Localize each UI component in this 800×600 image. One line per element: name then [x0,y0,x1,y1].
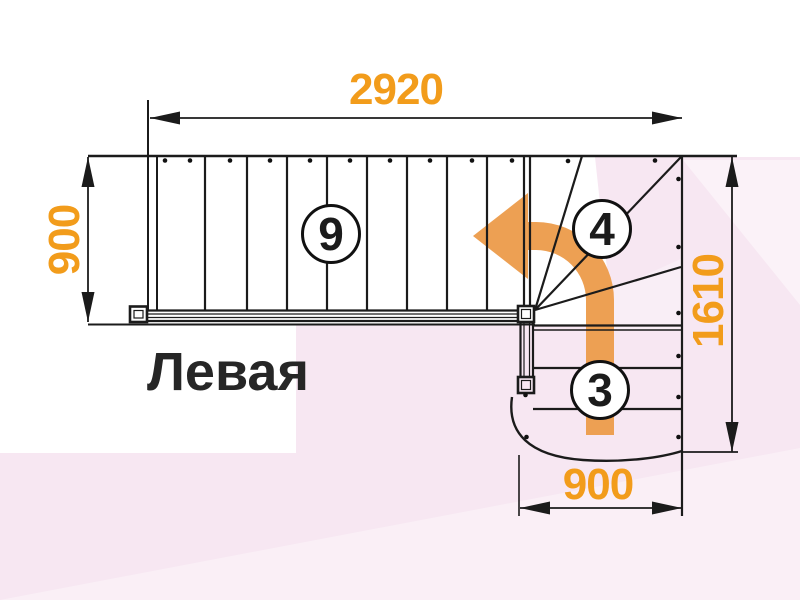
step-count-lower-flight: 3 [570,360,630,420]
dimension-label-right: 1610 [685,221,733,381]
step-count-upper-flight: 9 [301,204,361,264]
staircase-plan-diagram: 2920 900 1610 900 Левая 9 4 3 [0,0,800,600]
dimension-label-bottom: 900 [498,461,698,509]
plan-title: Левая [103,342,353,402]
dimension-label-top: 2920 [296,66,496,114]
step-count-winders: 4 [572,199,632,259]
dimension-label-left: 900 [41,160,89,320]
